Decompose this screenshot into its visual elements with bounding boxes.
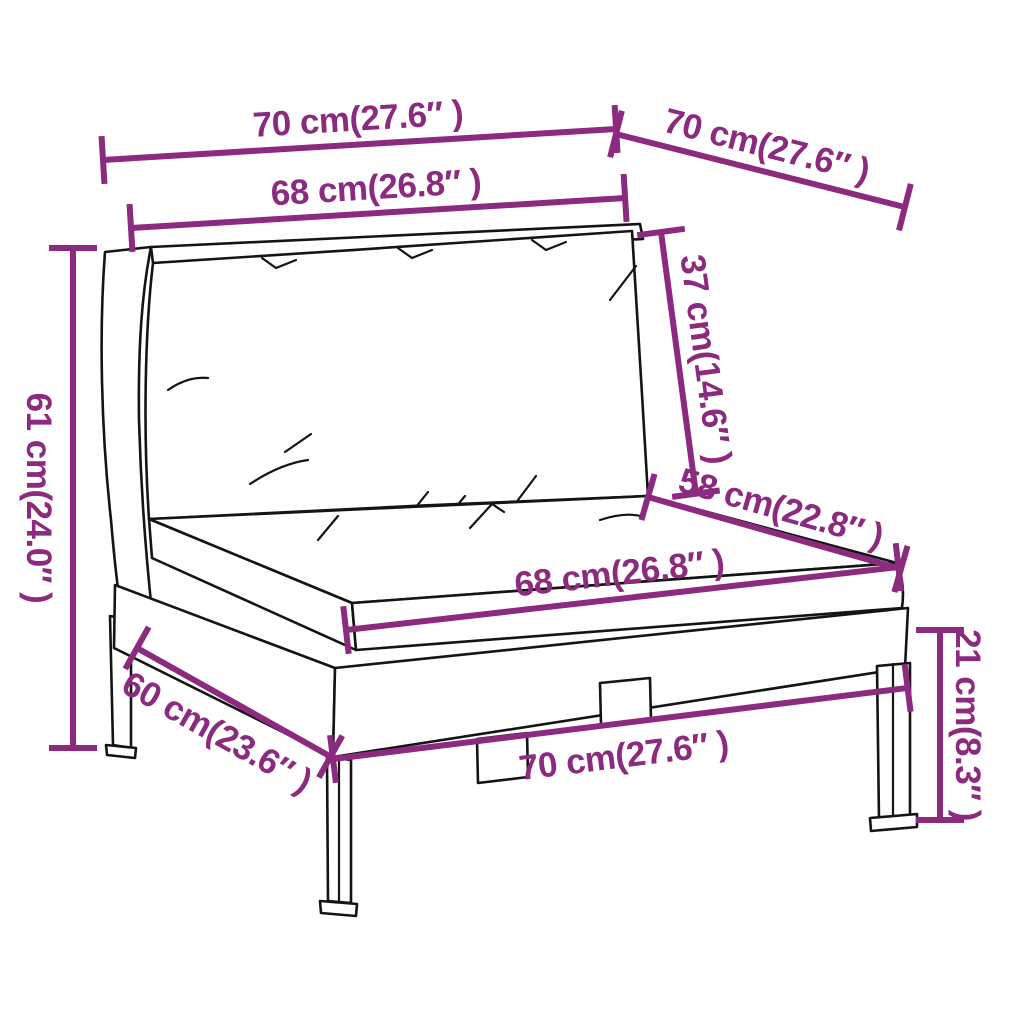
dim-overall-height: 61 cm(24.0″ ): [19, 248, 97, 748]
dim-overall-height-label: 61 cm(24.0″ ): [19, 393, 58, 604]
dim-leg-height: 21 cm(8.3″ ): [916, 629, 987, 821]
dimension-diagram: 70 cm(27.6″ ) 70 cm(27.6″ ) 68 cm(26.8″ …: [0, 0, 1024, 1024]
dim-back-cushion-height-label: 37 cm(14.6″ ): [672, 252, 739, 466]
dim-top-depth-label: 70 cm(27.6″ ): [660, 101, 874, 190]
leg-right-foot: [870, 814, 917, 831]
dim-back-cushion-height: 37 cm(14.6″ ): [637, 226, 742, 497]
sofa-line-art: [102, 224, 917, 916]
back-cushion: [146, 231, 648, 519]
dim-top-depth: 70 cm(27.6″ ): [610, 90, 916, 230]
sofa-dimension-drawing: 70 cm(27.6″ ) 70 cm(27.6″ ) 68 cm(26.8″ …: [0, 0, 1024, 1024]
leg-front-left-foot: [320, 901, 357, 916]
dim-leg-height-label: 21 cm(8.3″ ): [948, 629, 987, 821]
leg-back-left-foot: [106, 745, 136, 758]
